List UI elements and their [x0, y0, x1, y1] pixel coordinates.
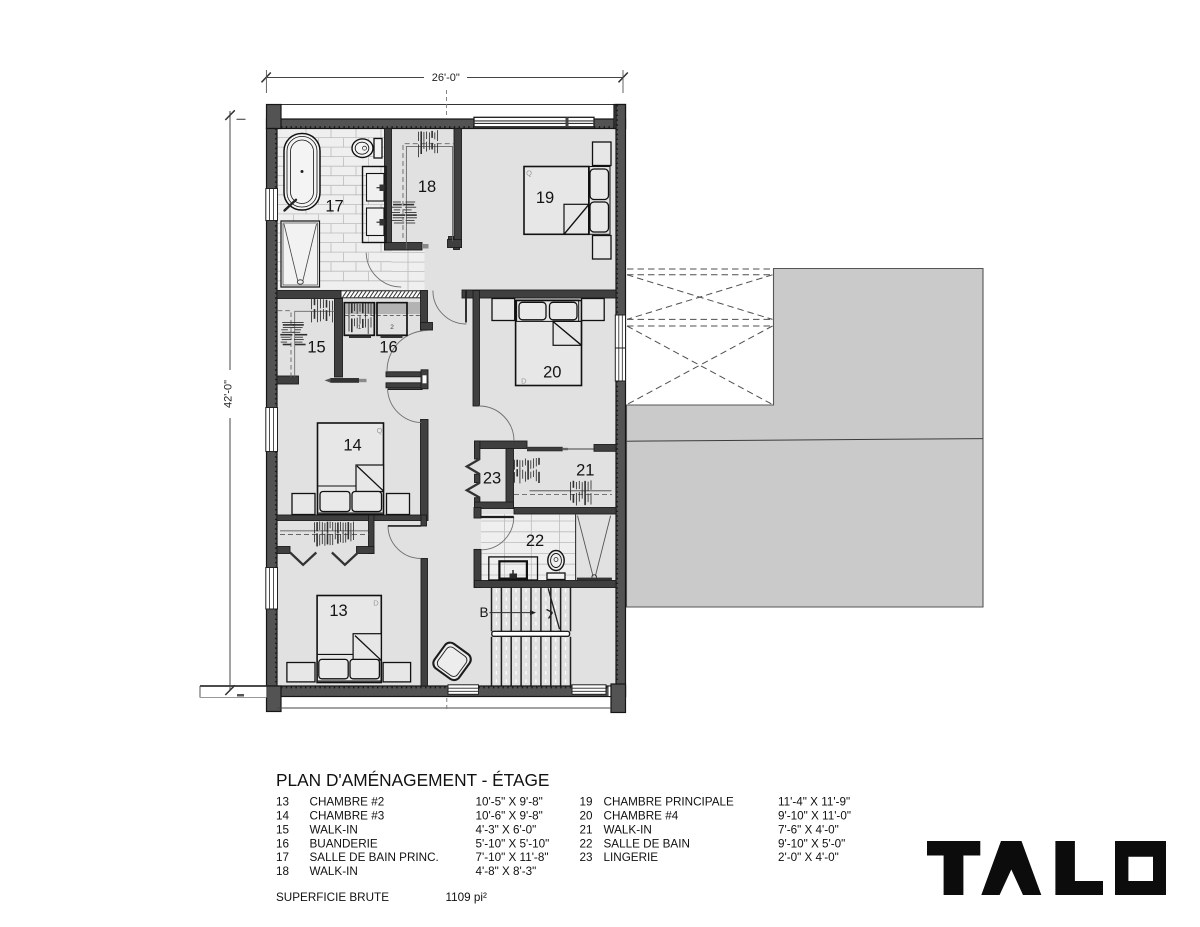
svg-text:22: 22	[580, 837, 593, 850]
svg-text:23: 23	[580, 851, 593, 864]
svg-text:42'-0": 42'-0"	[223, 380, 235, 408]
svg-text:BUANDERIE: BUANDERIE	[310, 837, 378, 850]
svg-text:7'-10" X 11'-8": 7'-10" X 11'-8"	[476, 851, 549, 864]
svg-text:LINGERIE: LINGERIE	[604, 851, 659, 864]
svg-text:D: D	[373, 599, 379, 608]
svg-text:11'-4" X 11'-9": 11'-4" X 11'-9"	[778, 796, 850, 809]
svg-text:4'-3" X 6'-0": 4'-3" X 6'-0"	[476, 823, 537, 836]
svg-text:2: 2	[390, 324, 394, 331]
svg-text:Q: Q	[377, 426, 383, 435]
svg-text:17: 17	[276, 851, 289, 864]
svg-text:WALK-IN: WALK-IN	[310, 865, 358, 878]
svg-text:21: 21	[580, 823, 593, 836]
svg-text:18: 18	[276, 865, 289, 878]
svg-text:7'-6" X 4'-0": 7'-6" X 4'-0"	[778, 823, 839, 836]
svg-text:18: 18	[418, 178, 436, 196]
svg-text:CHAMBRE #2: CHAMBRE #2	[310, 796, 385, 809]
svg-text:D: D	[521, 377, 527, 386]
svg-text:14: 14	[343, 437, 361, 455]
svg-text:15: 15	[307, 339, 325, 357]
svg-text:SALLE DE BAIN: SALLE DE BAIN	[604, 837, 690, 850]
svg-text:B: B	[479, 605, 488, 620]
svg-text:19: 19	[536, 189, 554, 207]
svg-text:Q: Q	[526, 169, 532, 178]
svg-text:WALK-IN: WALK-IN	[310, 823, 358, 836]
svg-text:PLAN D'AMÉNAGEMENT - ÉTAGE: PLAN D'AMÉNAGEMENT - ÉTAGE	[276, 770, 549, 790]
svg-text:20: 20	[543, 364, 561, 382]
svg-text:5'-10" X 5'-10": 5'-10" X 5'-10"	[476, 837, 550, 850]
svg-text:17: 17	[325, 198, 343, 216]
svg-text:SALLE DE BAIN PRINC.: SALLE DE BAIN PRINC.	[310, 851, 439, 864]
svg-text:2'-0" X 4'-0": 2'-0" X 4'-0"	[778, 851, 839, 864]
svg-text:23: 23	[483, 470, 501, 488]
svg-text:16: 16	[276, 837, 289, 850]
svg-text:1: 1	[358, 324, 362, 331]
svg-text:10'-5" X 9'-8": 10'-5" X 9'-8"	[476, 796, 543, 809]
svg-text:10'-6" X 9'-8": 10'-6" X 9'-8"	[476, 810, 543, 823]
svg-text:16: 16	[379, 339, 397, 357]
svg-text:4'-8" X 8'-3": 4'-8" X 8'-3"	[476, 865, 537, 878]
svg-text:WALK-IN: WALK-IN	[604, 823, 652, 836]
svg-text:CHAMBRE PRINCIPALE: CHAMBRE PRINCIPALE	[604, 796, 735, 809]
svg-text:26'-0": 26'-0"	[432, 72, 460, 84]
svg-text:CHAMBRE #4: CHAMBRE #4	[604, 810, 679, 823]
svg-text:SUPERFICIE BRUTE: SUPERFICIE BRUTE	[276, 891, 389, 904]
svg-text:13: 13	[276, 796, 289, 809]
svg-text:21: 21	[576, 462, 594, 480]
svg-text:14: 14	[276, 810, 290, 823]
svg-text:19: 19	[580, 796, 593, 809]
svg-text:9'-10" X 5'-0": 9'-10" X 5'-0"	[778, 837, 845, 850]
svg-text:1109 pi²: 1109 pi²	[446, 891, 487, 904]
svg-text:13: 13	[329, 602, 347, 620]
svg-text:9'-10" X 11'-0": 9'-10" X 11'-0"	[778, 810, 851, 823]
svg-text:15: 15	[276, 823, 290, 836]
svg-text:CHAMBRE #3: CHAMBRE #3	[310, 810, 385, 823]
svg-text:20: 20	[580, 810, 594, 823]
svg-text:22: 22	[526, 532, 544, 550]
